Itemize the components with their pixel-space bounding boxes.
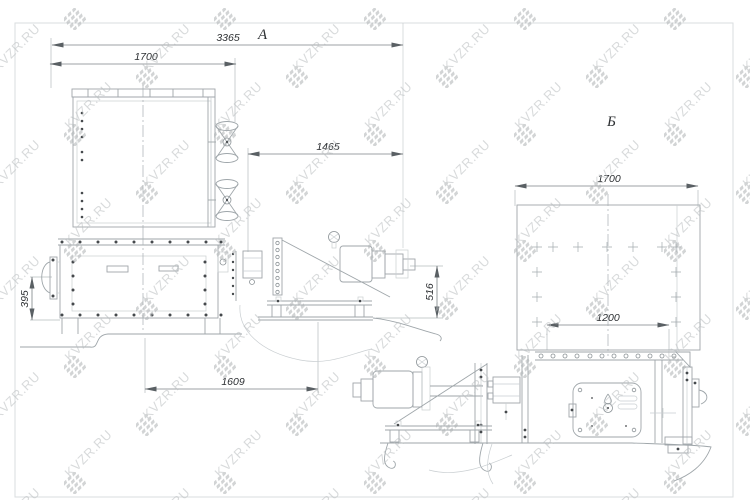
view-a-drive [232,232,441,362]
left-hook-bracket [42,257,60,299]
front-bolt-rows [61,241,223,317]
right-bracket [218,252,228,272]
flange-bolt-holes [535,352,690,367]
dim-1609: 1609 [221,376,245,388]
view-a-front [20,233,242,347]
view-b-group: Б 1700 1200 [353,114,711,484]
dim-395: 395 [19,290,31,308]
motor-side [353,357,483,411]
motor-base [258,297,373,320]
mount-plates [394,363,487,444]
right-hook-bracket [650,379,707,418]
base-rail-and-ground [380,421,711,484]
cover-plate [569,383,641,437]
supports-and-deck [20,318,242,347]
dim-516: 516 [424,283,436,301]
dim-1700-a: 1700 [134,51,158,63]
view-a-group: А 3365 1700 1465 395 1609 516 [19,27,443,393]
dim-3365: 3365 [216,32,240,44]
view-b-label: Б [606,114,616,130]
view-a-dimensions: 3365 1700 1465 395 1609 516 [19,32,443,393]
view-b-base [353,355,711,484]
eye-bolt [329,232,340,249]
plan-left-bolts [81,112,84,219]
sheave-block-bottom [208,180,238,221]
dim-1700-b: 1700 [597,173,621,185]
dim-1465: 1465 [316,141,340,153]
sheave-block-top [208,122,238,163]
view-a-label: А [257,27,268,43]
drawing-sheet: А 3365 1700 1465 395 1609 516 [0,0,750,500]
view-b-dimensions: 1700 1200 [515,173,698,350]
view-a-plan [72,85,238,233]
coupling-clamp [488,377,520,420]
brace-bracket [273,238,390,297]
view-b-housing [517,194,700,367]
technical-drawing: А 3365 1700 1465 395 1609 516 [0,0,750,500]
deck-break-lines [240,305,441,361]
